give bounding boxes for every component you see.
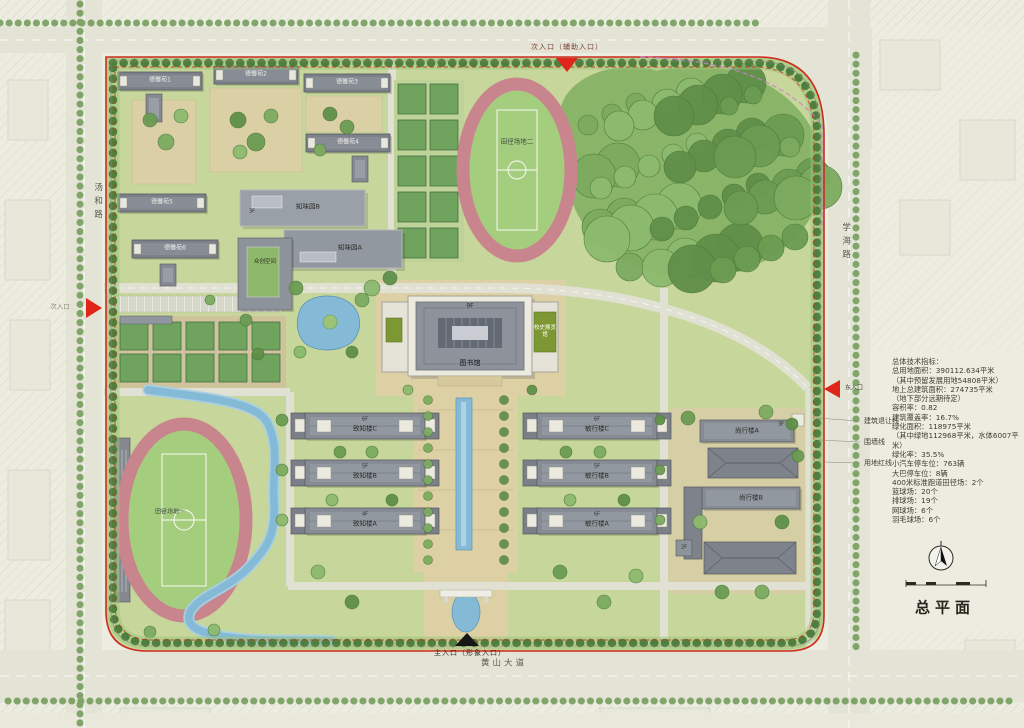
gate-pond xyxy=(452,592,480,632)
campus-master-plan: 汤和路 学海路 黄山大道 次入口（辅助入口） 次入口 东入口 主入口（形象入口）… xyxy=(0,0,1024,728)
campus-map-canvas xyxy=(0,0,1024,728)
maker-space-building xyxy=(238,238,294,312)
left-wing-tag xyxy=(386,318,402,342)
library-building xyxy=(382,296,558,386)
canteen-b-building xyxy=(240,190,368,229)
north-sports-zone xyxy=(394,80,571,262)
history-hall-tag xyxy=(534,312,556,352)
canteen-a-building xyxy=(284,230,405,271)
